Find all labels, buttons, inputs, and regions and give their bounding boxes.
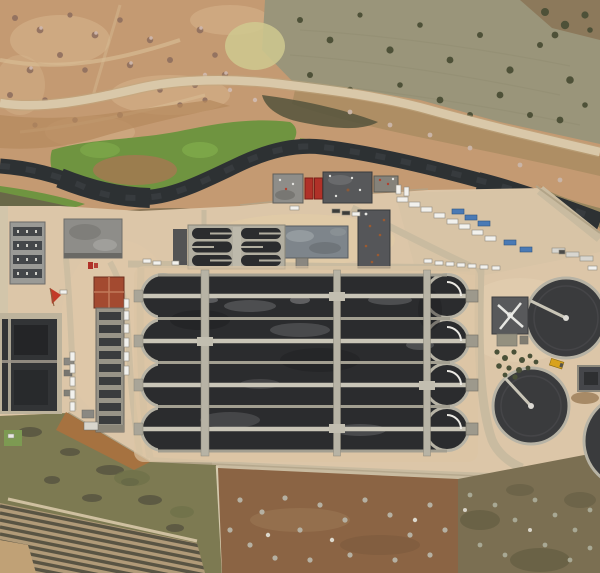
bright-grass-1 bbox=[182, 142, 218, 158]
serpentine-channel-tank bbox=[173, 225, 285, 269]
orchard-streak-2 bbox=[340, 535, 420, 555]
aeration-basins bbox=[134, 266, 478, 462]
clarifier-1 bbox=[526, 278, 600, 358]
pale-grass-patch bbox=[225, 22, 285, 70]
scrub-green-1 bbox=[114, 470, 150, 486]
gallery-building bbox=[96, 308, 124, 432]
strip-roof-building bbox=[10, 222, 45, 284]
left-edge-wall bbox=[0, 206, 8, 316]
dirt-patch bbox=[571, 392, 599, 404]
blue-gray-building bbox=[280, 226, 348, 258]
flat-roof-building bbox=[64, 219, 122, 258]
red-equipment-units bbox=[88, 262, 98, 269]
aerial-photo bbox=[0, 0, 600, 573]
marked-roof-building bbox=[492, 297, 528, 346]
bright-grass-2 bbox=[80, 142, 120, 158]
inlet-channel bbox=[173, 229, 187, 265]
dark-tank-complex bbox=[0, 313, 62, 414]
red-roof-building bbox=[94, 277, 124, 308]
storage-tank-square bbox=[578, 366, 600, 391]
lawn-structure bbox=[8, 434, 14, 438]
small-gray-building bbox=[374, 176, 398, 192]
workshop-building bbox=[273, 174, 303, 203]
scrub-green-2 bbox=[170, 506, 194, 518]
bank-bare-patch bbox=[93, 155, 177, 185]
clarifier-2 bbox=[493, 368, 569, 444]
dark-roof-building bbox=[323, 172, 372, 203]
tall-dark-building bbox=[358, 210, 390, 268]
